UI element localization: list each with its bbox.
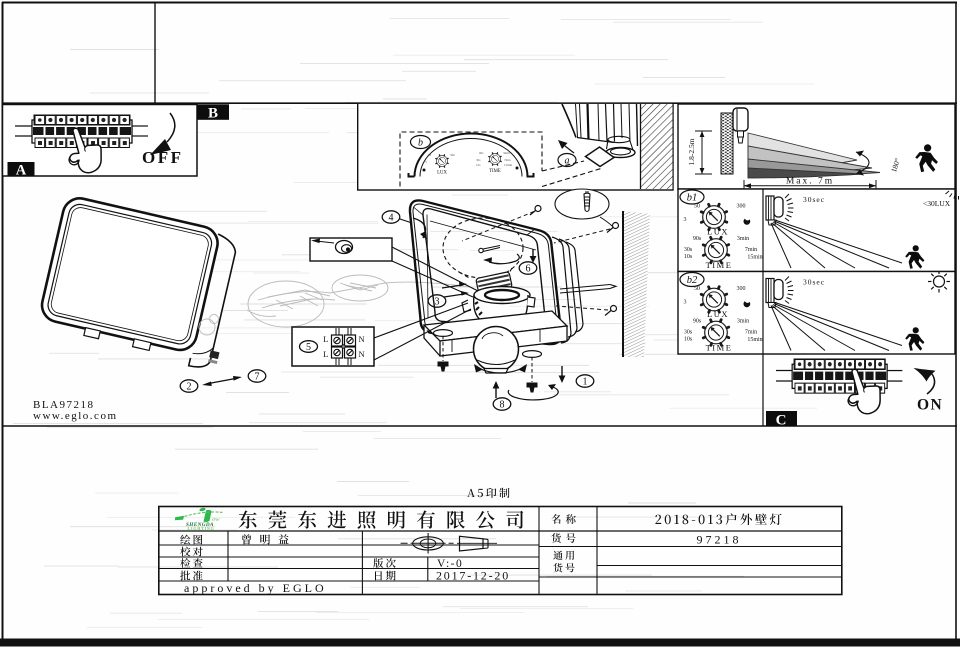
svg-text:LIGHTING: LIGHTING (188, 526, 215, 531)
svg-text:15min: 15min (504, 163, 513, 167)
svg-text:15min: 15min (747, 255, 762, 261)
svg-text:10s: 10s (684, 254, 693, 260)
svg-text:TIME: TIME (706, 343, 733, 353)
svg-text:TIME: TIME (706, 260, 733, 270)
svg-text:90s: 90s (479, 151, 484, 155)
svg-text:www.eglo.com: www.eglo.com (33, 410, 118, 422)
svg-text:7min: 7min (745, 330, 757, 336)
svg-text:10s: 10s (476, 163, 481, 167)
svg-text:LUX: LUX (707, 227, 729, 237)
svg-text:6: 6 (526, 263, 531, 274)
svg-text:30s: 30s (684, 247, 693, 253)
svg-text:1.8-2.5m: 1.8-2.5m (687, 138, 696, 165)
svg-text:LUX: LUX (437, 171, 447, 176)
svg-text:b1: b1 (687, 193, 698, 204)
svg-text:8: 8 (500, 399, 505, 410)
svg-text:<30LUX: <30LUX (923, 199, 951, 208)
svg-text:N: N (359, 334, 365, 344)
svg-text:50: 50 (694, 286, 700, 292)
svg-text:50: 50 (694, 204, 700, 210)
svg-text:30s: 30s (476, 158, 481, 162)
svg-text:3min: 3min (503, 151, 510, 155)
svg-text:3min: 3min (737, 319, 749, 325)
svg-text:300: 300 (737, 286, 746, 292)
svg-text:N: N (359, 349, 365, 359)
svg-text:3: 3 (684, 217, 687, 223)
svg-text:L: L (323, 334, 328, 344)
svg-text:90s: 90s (693, 319, 702, 325)
svg-text:30s: 30s (684, 330, 693, 336)
svg-text:approved by EGLO: approved by EGLO (184, 581, 327, 595)
svg-text:3: 3 (435, 296, 440, 307)
svg-text:2017-12-20: 2017-12-20 (436, 569, 510, 583)
svg-text:97218: 97218 (697, 533, 742, 547)
svg-text:15min: 15min (747, 337, 762, 343)
svg-text:ON: ON (917, 397, 943, 414)
svg-text:7: 7 (255, 371, 260, 382)
svg-text:3: 3 (684, 300, 687, 306)
svg-text:TIME: TIME (489, 169, 501, 174)
svg-text:3min: 3min (737, 236, 749, 242)
svg-text:5: 5 (306, 342, 311, 353)
svg-text:L: L (323, 349, 328, 359)
svg-text:300: 300 (737, 204, 746, 210)
svg-text:50: 50 (428, 153, 432, 157)
svg-text:7min: 7min (504, 158, 511, 162)
svg-text:10s: 10s (684, 337, 693, 343)
svg-text:b: b (418, 138, 423, 149)
svg-text:30sec: 30sec (803, 278, 825, 287)
svg-text:B: B (208, 105, 218, 121)
svg-text:2: 2 (187, 381, 192, 392)
svg-text:OFF: OFF (142, 148, 184, 167)
svg-text:C: C (776, 413, 787, 429)
svg-text:4: 4 (389, 212, 394, 223)
svg-text:b2: b2 (687, 275, 698, 286)
svg-text:Max. 7m: Max. 7m (786, 177, 834, 187)
svg-text:30sec: 30sec (803, 195, 825, 204)
svg-text:300: 300 (450, 153, 455, 157)
svg-text:1: 1 (583, 376, 588, 387)
svg-text:A: A (16, 162, 27, 178)
svg-text:90s: 90s (693, 236, 702, 242)
svg-text:7min: 7min (745, 247, 757, 253)
svg-text:LUX: LUX (707, 309, 729, 319)
